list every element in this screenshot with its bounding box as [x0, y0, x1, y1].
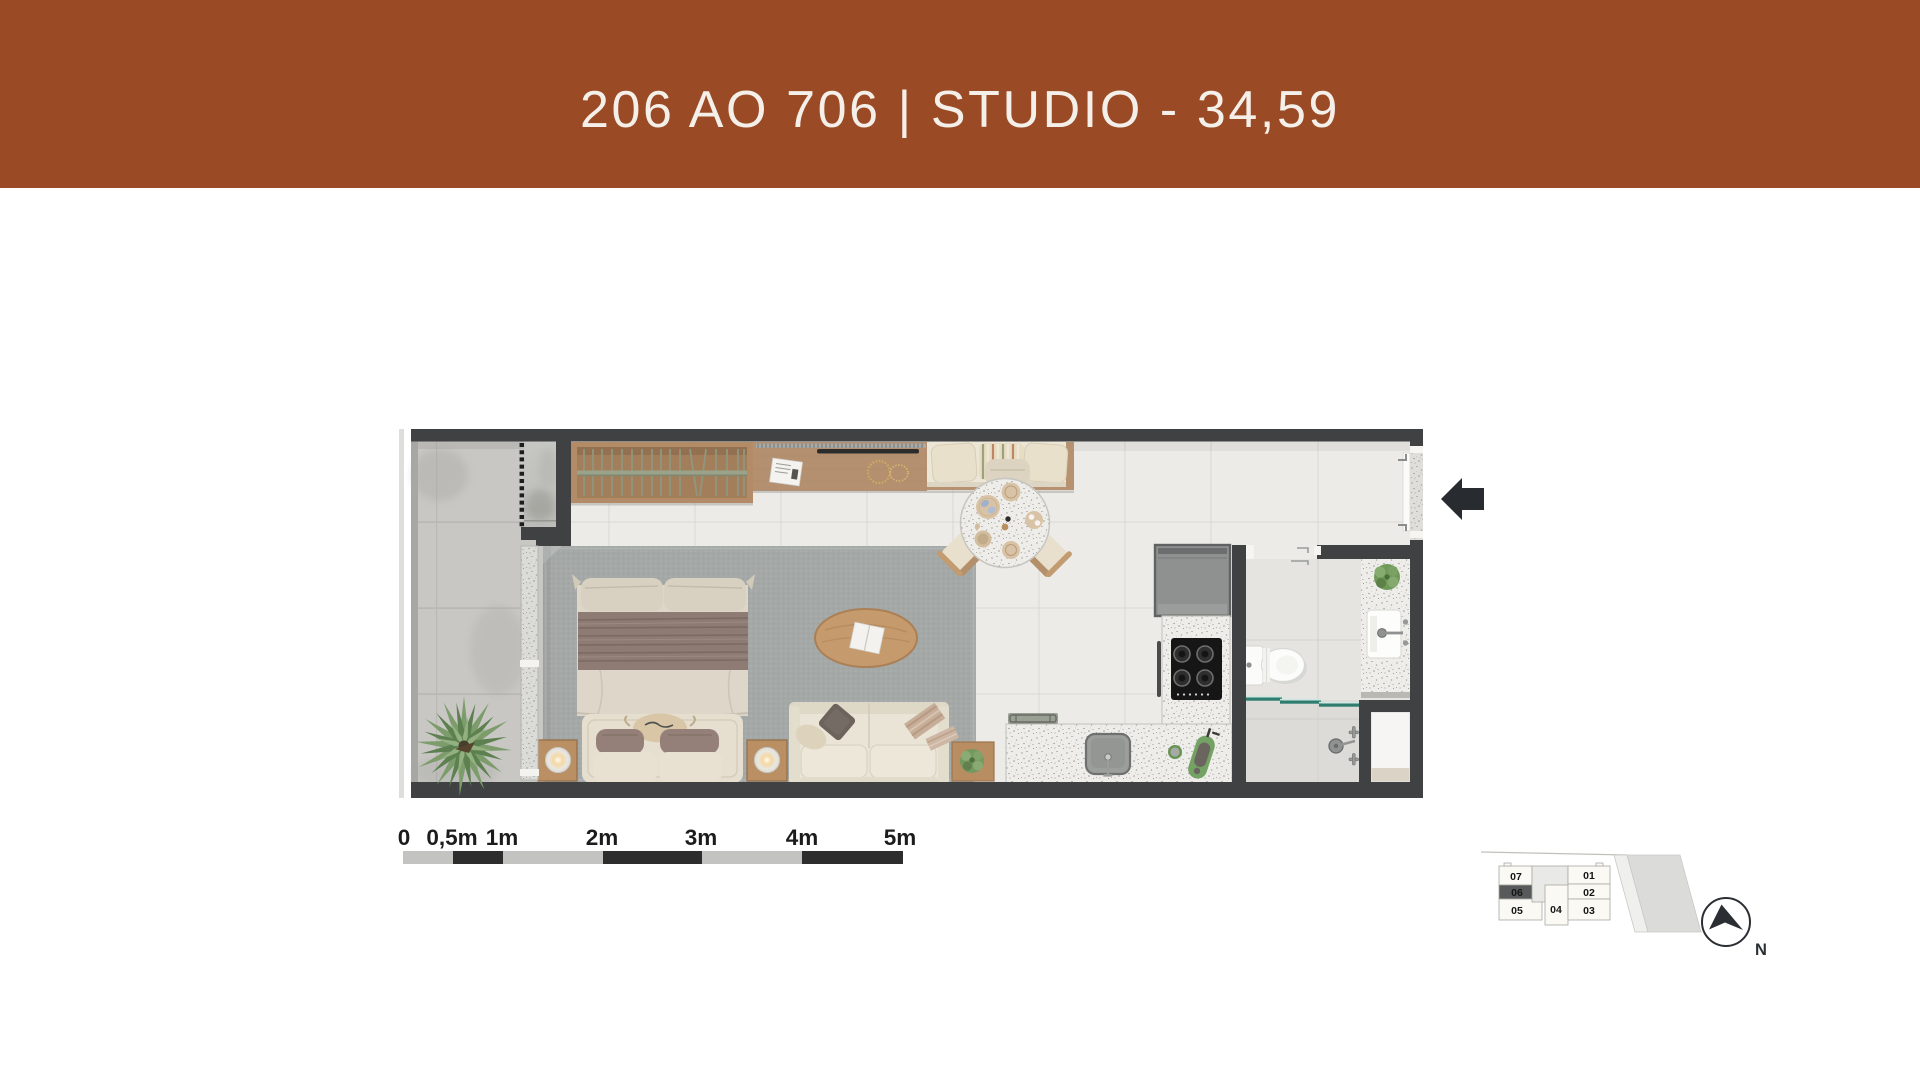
- svg-text:03: 03: [1583, 905, 1595, 917]
- svg-text:206 AO 706 | STUDIO - 34,59: 206 AO 706 | STUDIO - 34,59: [580, 81, 1340, 139]
- svg-text:4m: 4m: [786, 825, 819, 850]
- svg-text:06: 06: [1511, 887, 1523, 899]
- svg-text:01: 01: [1583, 870, 1595, 882]
- svg-text:02: 02: [1583, 887, 1595, 899]
- svg-text:3m: 3m: [685, 825, 718, 850]
- svg-text:04: 04: [1550, 904, 1562, 916]
- svg-text:0,5m: 0,5m: [426, 825, 477, 850]
- svg-text:0: 0: [398, 825, 411, 850]
- svg-text:2m: 2m: [586, 825, 619, 850]
- svg-text:05: 05: [1511, 905, 1523, 917]
- svg-text:N: N: [1755, 941, 1767, 959]
- svg-text:1m: 1m: [486, 825, 519, 850]
- svg-text:07: 07: [1510, 871, 1522, 883]
- svg-text:5m: 5m: [884, 825, 917, 850]
